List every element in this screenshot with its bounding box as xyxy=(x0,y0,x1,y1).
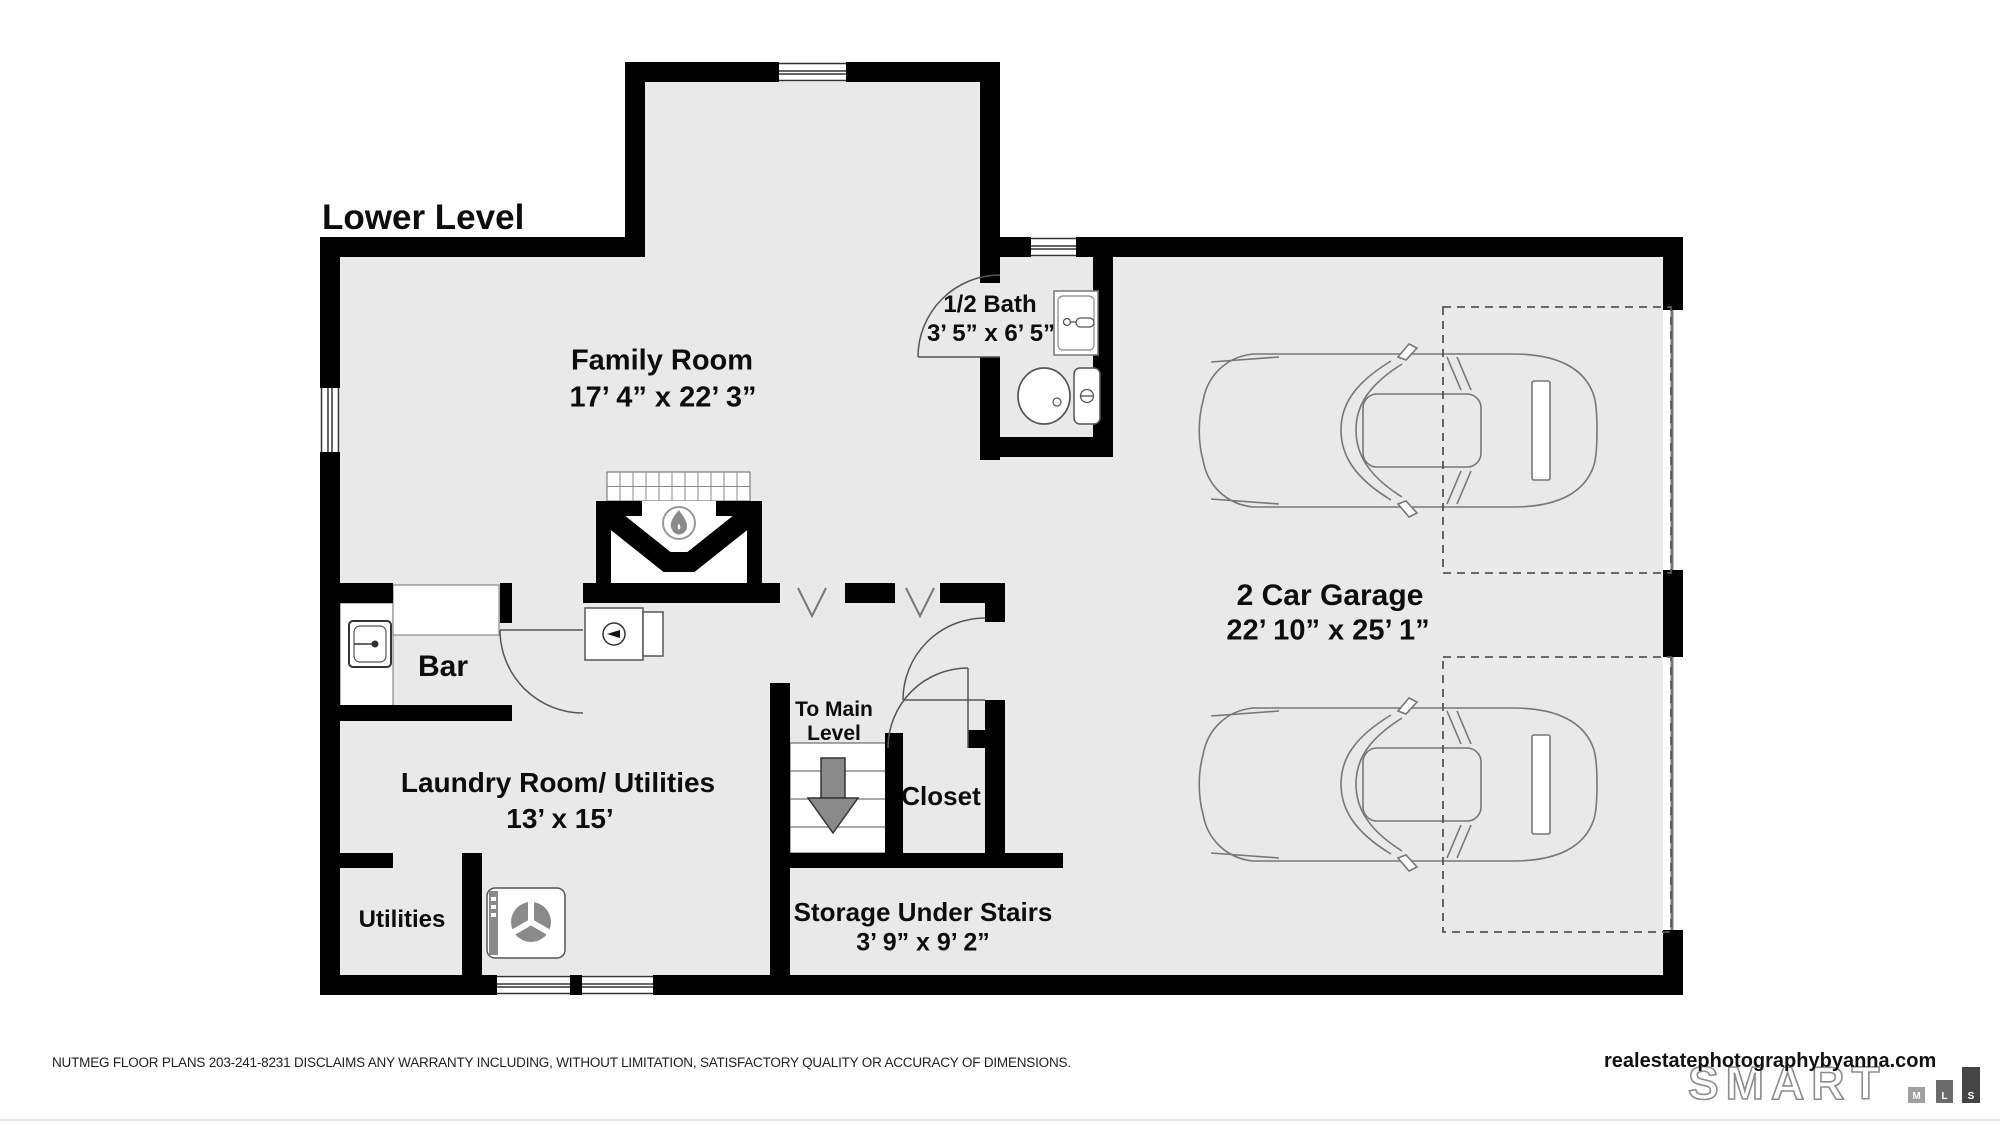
window-left-wall xyxy=(320,382,340,458)
utilities-label: Utilities xyxy=(359,906,446,934)
car-top xyxy=(1199,344,1597,517)
to-main-level-label: To Main Level xyxy=(784,698,884,746)
window-laundry-double xyxy=(490,975,660,995)
floor-plan-svg xyxy=(0,0,2000,1125)
car-bottom xyxy=(1199,698,1597,871)
toilet xyxy=(1018,368,1100,424)
fireplace xyxy=(596,472,762,583)
family-room-label: Family Room xyxy=(571,344,753,377)
floor-plan-page: Lower Level Family Room 17’ 4” x 22’ 3” … xyxy=(0,0,2000,1125)
laundry-label: Laundry Room/ Utilities xyxy=(401,767,715,799)
mls-l-box: L xyxy=(1936,1080,1953,1103)
website-text: realestatephotographybyanna.com xyxy=(1604,1050,1936,1073)
storage-dims: 3’ 9” x 9’ 2” xyxy=(856,929,989,958)
bar-appliance xyxy=(585,608,663,660)
storage-label: Storage Under Stairs xyxy=(794,898,1053,928)
garage-dims: 22’ 10” x 25’ 1” xyxy=(1226,614,1429,647)
bottom-edge-line xyxy=(0,1119,2000,1121)
disclaimer-text: NUTMEG FLOOR PLANS 203-241-8231 DISCLAIM… xyxy=(52,1055,1071,1070)
page-title: Lower Level xyxy=(322,198,524,238)
bar-sink xyxy=(349,621,391,667)
family-room-dims: 17’ 4” x 22’ 3” xyxy=(569,381,756,414)
garage-label: 2 Car Garage xyxy=(1237,579,1424,614)
mls-m-box: M xyxy=(1908,1087,1925,1103)
laundry-dims: 13’ x 15’ xyxy=(506,803,613,835)
bar-label: Bar xyxy=(418,650,468,685)
window-top-bump xyxy=(773,62,852,82)
closet-label: Closet xyxy=(901,782,980,812)
bath-vanity-sink xyxy=(1054,291,1098,355)
mls-s-box: S xyxy=(1962,1067,1980,1103)
half-bath-label: 1/2 Bath xyxy=(943,291,1036,319)
window-bath xyxy=(1025,237,1082,257)
half-bath-dims: 3’ 5” x 6’ 5” xyxy=(927,320,1055,348)
washer-appliance xyxy=(487,888,565,958)
